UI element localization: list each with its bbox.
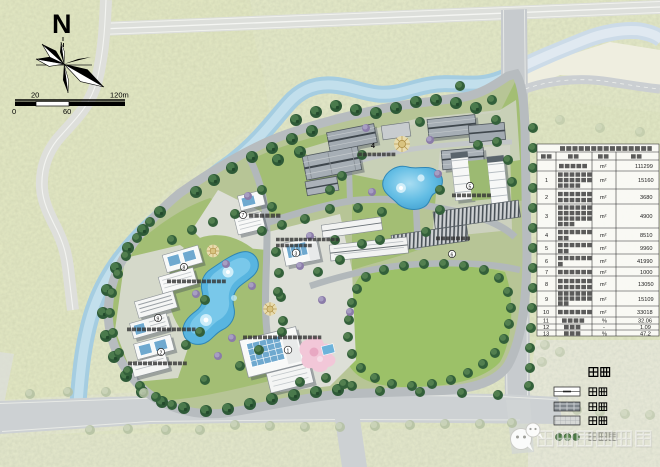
svg-text:20: 20 bbox=[31, 91, 39, 100]
svg-text:33018: 33018 bbox=[637, 310, 653, 316]
svg-text:m²: m² bbox=[600, 259, 607, 265]
svg-text:8510: 8510 bbox=[640, 233, 652, 239]
svg-text:15109: 15109 bbox=[638, 297, 654, 303]
svg-text:120m: 120m bbox=[110, 91, 129, 100]
svg-text:12: 12 bbox=[543, 325, 549, 331]
svg-text:3680: 3680 bbox=[640, 195, 652, 201]
svg-text:4: 4 bbox=[545, 233, 548, 239]
svg-text:m²: m² bbox=[600, 214, 607, 220]
svg-text:6: 6 bbox=[545, 259, 548, 265]
svg-text:9: 9 bbox=[157, 316, 160, 322]
svg-text:-: - bbox=[603, 325, 605, 331]
svg-text:2: 2 bbox=[545, 195, 548, 201]
svg-text:%: % bbox=[602, 331, 607, 337]
svg-text:1: 1 bbox=[545, 178, 548, 184]
svg-text:m²: m² bbox=[600, 233, 607, 239]
svg-text:%: % bbox=[602, 319, 607, 325]
svg-text:m²: m² bbox=[600, 282, 607, 288]
svg-text:13050: 13050 bbox=[638, 282, 654, 288]
svg-text:5: 5 bbox=[545, 246, 548, 252]
svg-text:8: 8 bbox=[545, 282, 548, 288]
svg-text:11: 11 bbox=[543, 319, 549, 325]
svg-text:1.09: 1.09 bbox=[640, 325, 651, 331]
svg-text:9960: 9960 bbox=[640, 246, 652, 252]
svg-text:m²: m² bbox=[600, 297, 607, 303]
svg-text:1000: 1000 bbox=[640, 270, 652, 276]
svg-text:3: 3 bbox=[545, 214, 548, 220]
svg-text:N: N bbox=[52, 9, 72, 39]
svg-text:8: 8 bbox=[183, 265, 186, 271]
svg-text:60: 60 bbox=[63, 107, 71, 116]
svg-text:4900: 4900 bbox=[640, 214, 652, 220]
svg-text:47.2: 47.2 bbox=[640, 331, 651, 337]
svg-text:4: 4 bbox=[371, 143, 375, 150]
svg-text:5: 5 bbox=[469, 184, 472, 190]
svg-text:m²: m² bbox=[600, 164, 607, 170]
svg-text:13: 13 bbox=[543, 331, 549, 337]
svg-text:41990: 41990 bbox=[637, 259, 653, 265]
svg-text:15160: 15160 bbox=[638, 178, 654, 184]
svg-text:3: 3 bbox=[295, 252, 298, 258]
svg-text:m²: m² bbox=[600, 310, 607, 316]
svg-text:1: 1 bbox=[287, 349, 290, 355]
svg-text:m²: m² bbox=[600, 178, 607, 184]
svg-text:m²: m² bbox=[600, 270, 607, 276]
svg-text:2: 2 bbox=[160, 350, 163, 356]
svg-text:m²: m² bbox=[600, 195, 607, 201]
svg-text:111299: 111299 bbox=[635, 164, 653, 170]
svg-text:10: 10 bbox=[543, 310, 549, 316]
svg-text:6: 6 bbox=[451, 252, 454, 258]
svg-text:32.06: 32.06 bbox=[638, 319, 652, 325]
svg-text:7: 7 bbox=[242, 213, 245, 219]
svg-text:9: 9 bbox=[545, 297, 548, 303]
svg-text:0: 0 bbox=[12, 107, 16, 116]
svg-text:7: 7 bbox=[545, 270, 548, 276]
svg-text:m²: m² bbox=[600, 246, 607, 252]
